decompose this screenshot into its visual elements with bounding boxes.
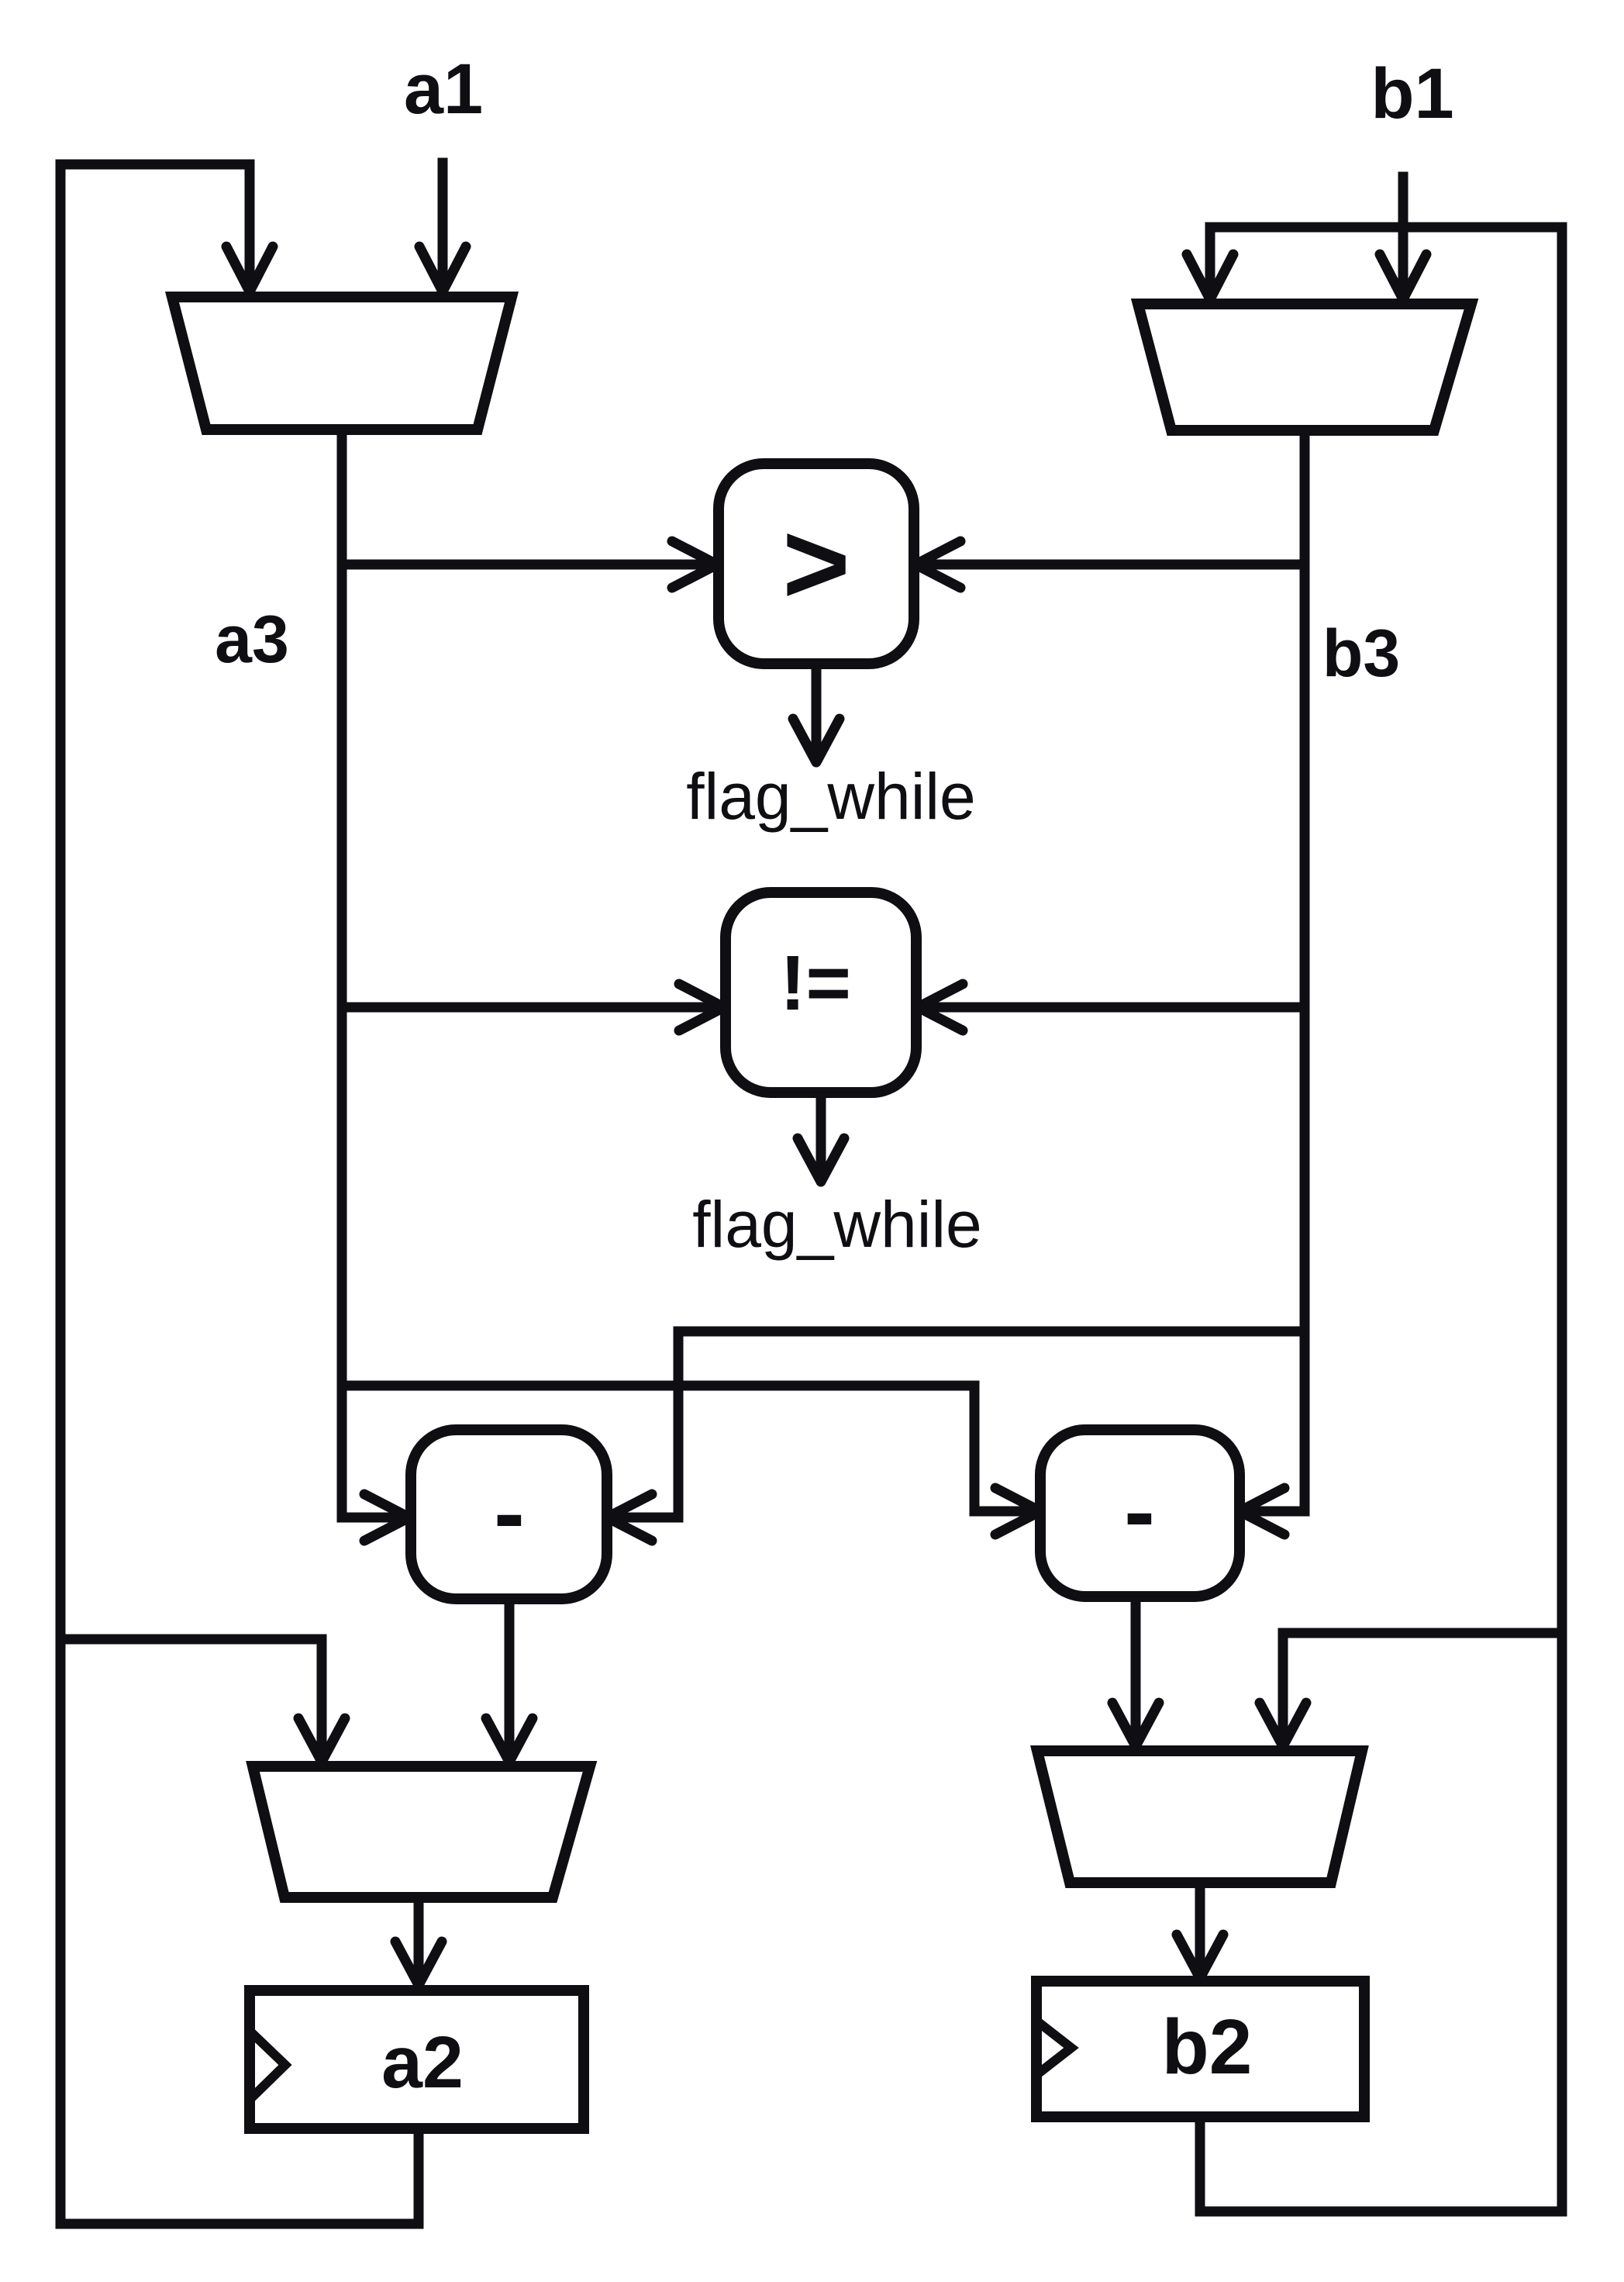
mux-b2 <box>1037 1751 1362 1883</box>
datapath-diagram: a1 b1 a3 b3 > flag_while != flag_while -… <box>0 0 1624 2282</box>
wire-bus-b3 <box>1244 430 1305 1511</box>
label-flag-while-gt: flag_while <box>686 760 976 833</box>
operator-subtract-left: - <box>494 1461 525 1565</box>
label-input-b1: b1 <box>1371 54 1453 133</box>
operator-subtract-right: - <box>1124 1459 1155 1563</box>
label-input-a1: a1 <box>404 50 483 129</box>
mux-a <box>172 297 512 430</box>
mux-a2 <box>253 1766 590 1897</box>
label-bus-a3: a3 <box>215 602 289 677</box>
label-flag-while-neq: flag_while <box>692 1188 982 1261</box>
label-register-b2: b2 <box>1162 2004 1253 2090</box>
mux-b <box>1138 304 1471 430</box>
operator-neq: != <box>780 940 851 1027</box>
operator-gt: > <box>782 498 850 628</box>
wire-feedback-a-loop <box>60 164 419 2224</box>
wire-feedback-b-loop <box>1200 227 1562 2211</box>
wire-feedback-a-branch <box>60 1639 322 1757</box>
label-register-a2: a2 <box>381 2021 464 2104</box>
label-bus-b3: b3 <box>1322 616 1400 691</box>
wire-bus-a3 <box>342 430 405 1517</box>
wire-feedback-b-branch <box>1283 1633 1562 1742</box>
